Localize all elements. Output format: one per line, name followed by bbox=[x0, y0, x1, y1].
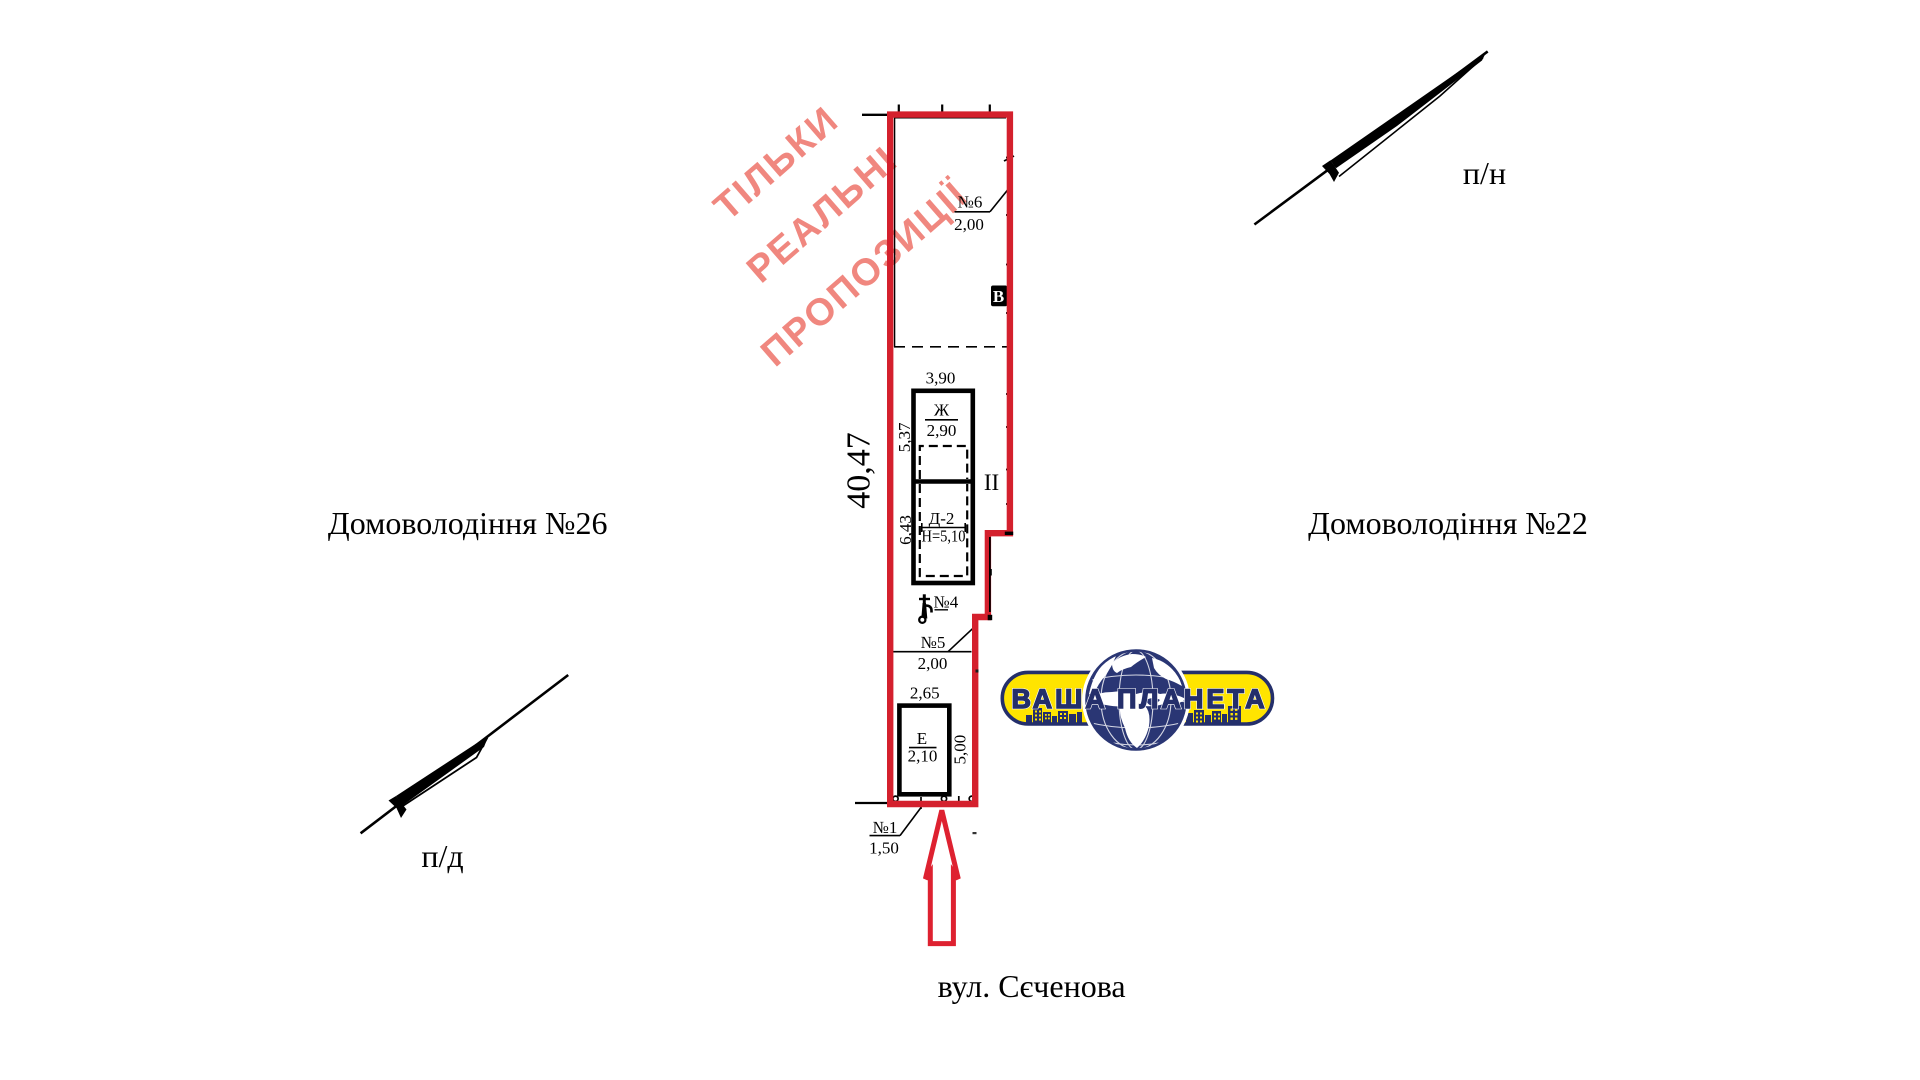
svg-text:40,47: 40,47 bbox=[841, 432, 878, 509]
svg-text:Д-2: Д-2 bbox=[929, 509, 955, 528]
svg-text:№6: №6 bbox=[958, 193, 983, 212]
svg-text:5,37: 5,37 bbox=[895, 422, 914, 452]
svg-text:1,50: 1,50 bbox=[869, 839, 899, 858]
svg-text:п/д: п/д bbox=[421, 838, 463, 874]
svg-text:5,00: 5,00 bbox=[950, 735, 969, 765]
svg-text:2,10: 2,10 bbox=[908, 747, 938, 766]
svg-text:п/н: п/н bbox=[1463, 155, 1506, 191]
svg-text:II: II bbox=[984, 470, 999, 495]
svg-text:Домоволодіння №22: Домоволодіння №22 bbox=[1308, 505, 1588, 541]
svg-text:В: В bbox=[993, 287, 1004, 306]
svg-text:2,00: 2,00 bbox=[918, 654, 948, 673]
svg-text:ВАША: ВАША bbox=[1012, 684, 1108, 714]
svg-text:Домоволодіння №26: Домоволодіння №26 bbox=[328, 505, 608, 541]
svg-text:2,00: 2,00 bbox=[954, 215, 984, 234]
svg-text:Н=5,10: Н=5,10 bbox=[922, 527, 966, 546]
svg-text:2,90: 2,90 bbox=[927, 421, 957, 440]
svg-text:№1: №1 bbox=[873, 818, 898, 837]
svg-text:вул. Сєченова: вул. Сєченова bbox=[938, 968, 1126, 1004]
svg-text:№4: №4 bbox=[934, 593, 959, 612]
svg-text:2,65: 2,65 bbox=[910, 684, 940, 703]
svg-text:ПЛАНЕТА: ПЛАНЕТА bbox=[1117, 684, 1268, 714]
svg-text:№5: №5 bbox=[921, 633, 946, 652]
svg-text:3,90: 3,90 bbox=[926, 369, 956, 388]
svg-text:Е: Е bbox=[917, 729, 927, 748]
svg-text:Ж: Ж bbox=[934, 401, 950, 420]
